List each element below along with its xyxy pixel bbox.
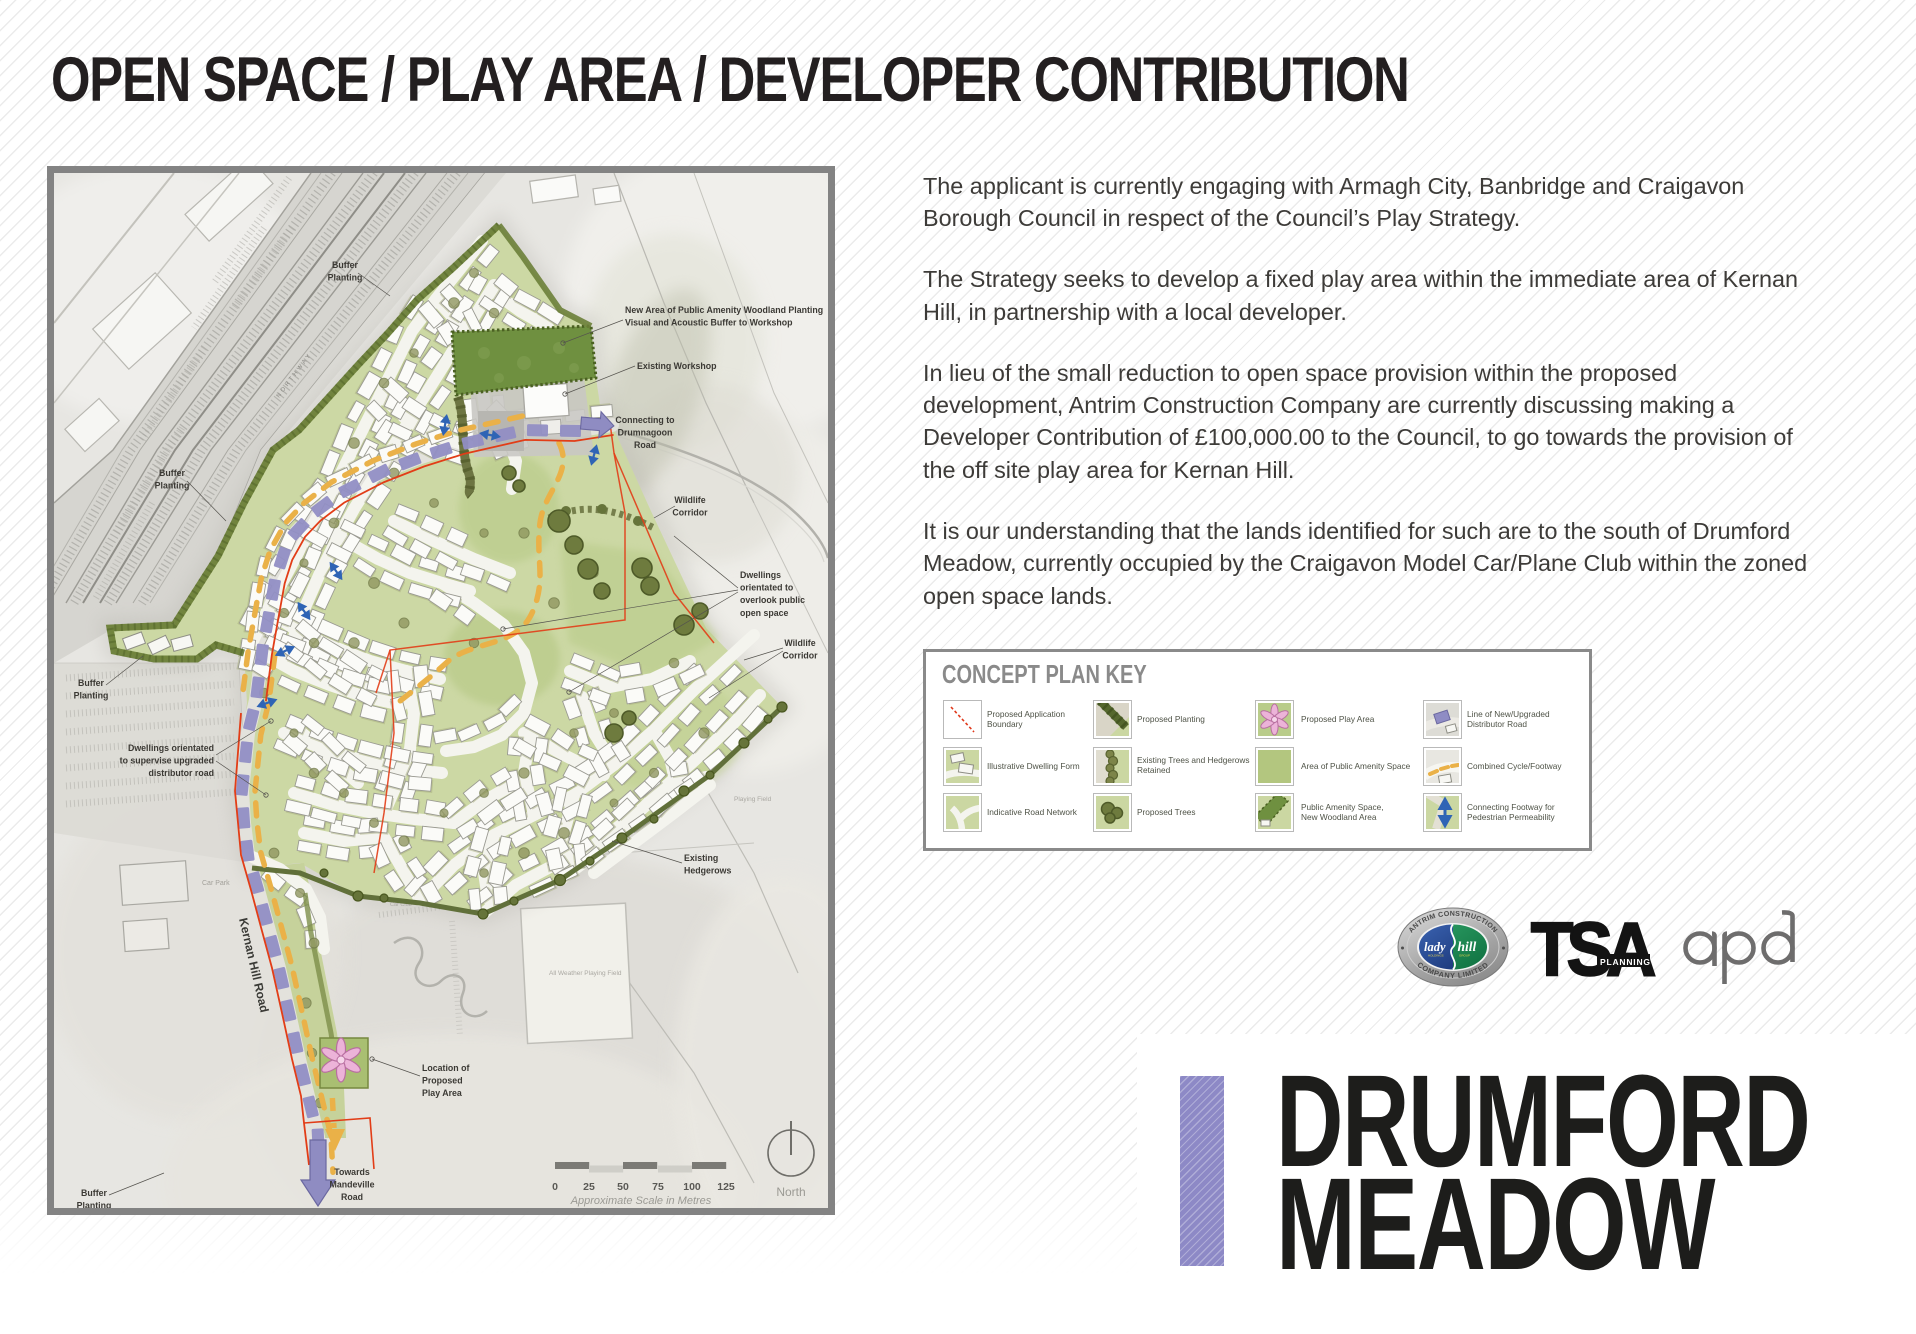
svg-text:Visual and Acoustic Buffer to: Visual and Acoustic Buffer to Workshop	[625, 318, 793, 328]
svg-text:Planting: Planting	[328, 273, 363, 283]
svg-text:Playing Field: Playing Field	[734, 796, 772, 803]
svg-text:Wildlife: Wildlife	[674, 495, 705, 505]
svg-text:open space: open space	[740, 608, 789, 618]
svg-text:New Area of Public Amenity Woo: New Area of Public Amenity Woodland Plan…	[625, 305, 823, 315]
svg-text:Planting: Planting	[74, 691, 109, 701]
svg-text:Location of: Location of	[422, 1063, 469, 1073]
svg-text:Dwellings orientated: Dwellings orientated	[128, 743, 214, 753]
svg-text:Buffer: Buffer	[159, 468, 185, 478]
svg-text:to supervise upgraded: to supervise upgraded	[120, 756, 214, 766]
svg-text:Proposed: Proposed	[422, 1076, 463, 1086]
svg-text:Buffer: Buffer	[81, 1188, 107, 1198]
svg-text:Corridor: Corridor	[672, 508, 708, 518]
svg-text:All Weather Playing Field: All Weather Playing Field	[549, 970, 622, 977]
svg-text:0: 0	[552, 1181, 558, 1193]
svg-text:lady: lady	[1424, 940, 1446, 954]
svg-text:North: North	[776, 1185, 805, 1199]
svg-text:Play Area: Play Area	[422, 1088, 462, 1098]
svg-text:Wildlife: Wildlife	[784, 638, 815, 648]
svg-text:Approximate Scale in Metres: Approximate Scale in Metres	[570, 1195, 712, 1207]
svg-text:overlook public: overlook public	[740, 595, 805, 605]
svg-text:25: 25	[583, 1181, 595, 1193]
svg-text:Mandeville: Mandeville	[330, 1180, 375, 1190]
svg-text:Dwellings: Dwellings	[740, 570, 781, 580]
svg-text:Towards: Towards	[334, 1167, 370, 1177]
svg-text:Existing Workshop: Existing Workshop	[637, 361, 717, 371]
svg-text:Planting: Planting	[77, 1201, 112, 1208]
svg-text:100: 100	[683, 1181, 701, 1193]
svg-text:Planting: Planting	[155, 481, 190, 491]
svg-text:orientated to: orientated to	[740, 583, 794, 593]
svg-text:Road: Road	[341, 1192, 363, 1202]
svg-text:Connecting to: Connecting to	[615, 415, 675, 425]
svg-text:Hedgerows: Hedgerows	[684, 866, 732, 876]
svg-text:Drumnagoon: Drumnagoon	[618, 428, 673, 438]
svg-text:Car Park: Car Park	[202, 880, 230, 887]
svg-text:GROUP: GROUP	[1459, 954, 1470, 958]
svg-text:50: 50	[617, 1181, 629, 1193]
svg-text:distributor road: distributor road	[149, 768, 215, 778]
svg-text:Existing: Existing	[684, 853, 718, 863]
svg-text:Buffer: Buffer	[332, 260, 358, 270]
svg-text:Road: Road	[634, 440, 656, 450]
svg-text:Buffer: Buffer	[78, 678, 104, 688]
svg-text:125: 125	[717, 1181, 735, 1193]
svg-text:75: 75	[652, 1181, 664, 1193]
svg-text:HOLDINGS: HOLDINGS	[1428, 954, 1444, 958]
svg-text:hill: hill	[1458, 939, 1477, 954]
svg-text:Corridor: Corridor	[782, 651, 818, 661]
